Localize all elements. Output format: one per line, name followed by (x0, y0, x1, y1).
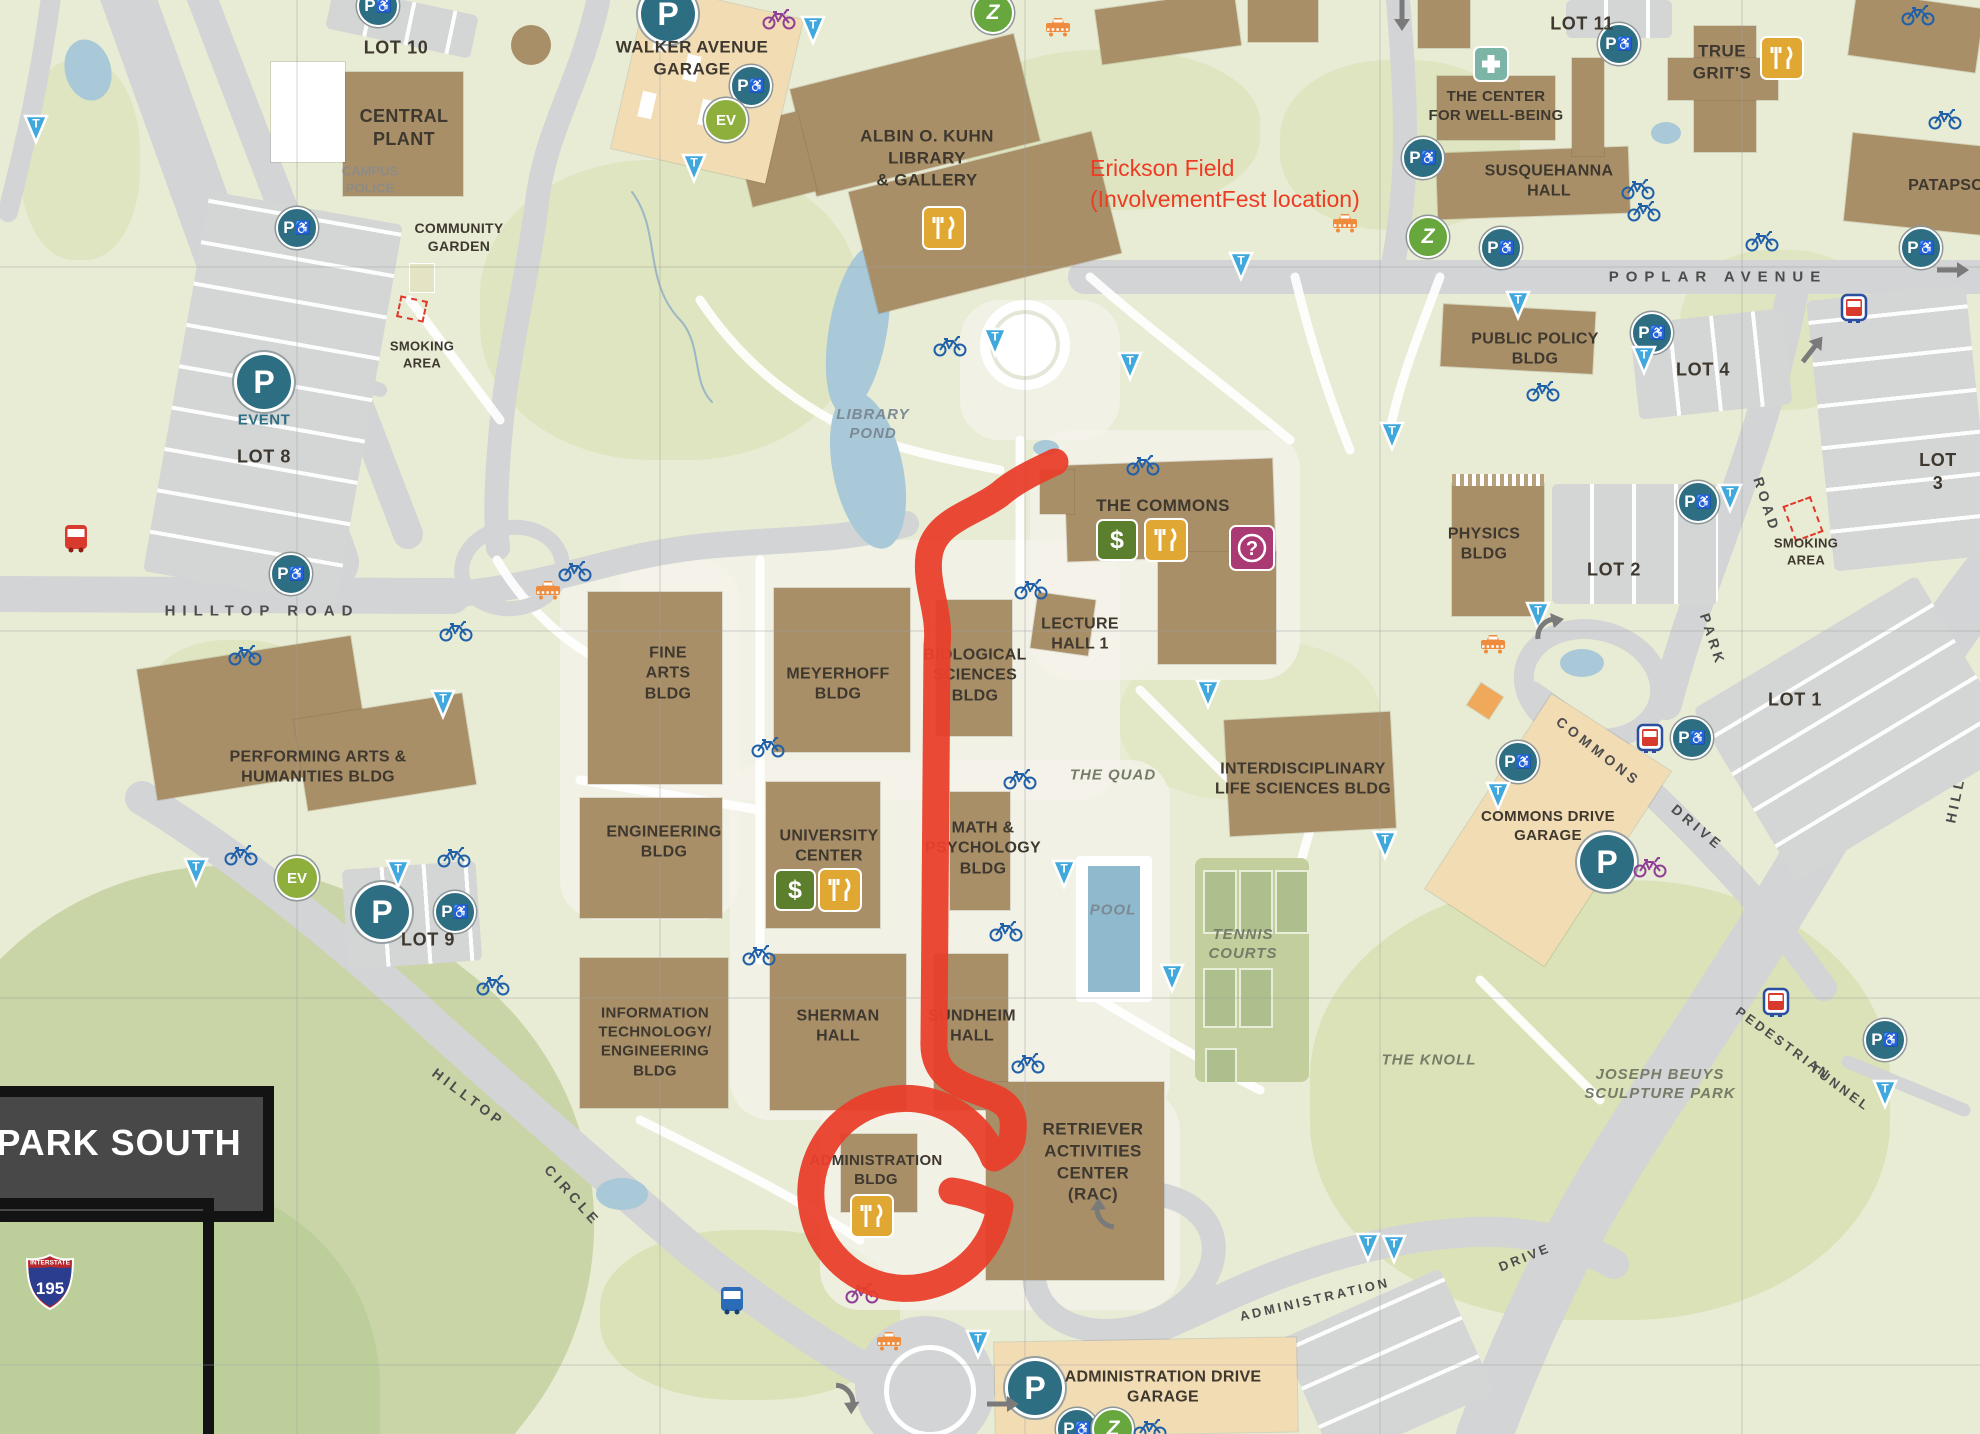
route-path (811, 462, 1055, 1288)
campus-map: PPPPPP♿P♿P♿P♿P♿P♿P♿P♿P♿P♿P♿P♿P♿P♿P♿EVEVZ… (0, 0, 1980, 1434)
route-highlight (0, 0, 1980, 1434)
